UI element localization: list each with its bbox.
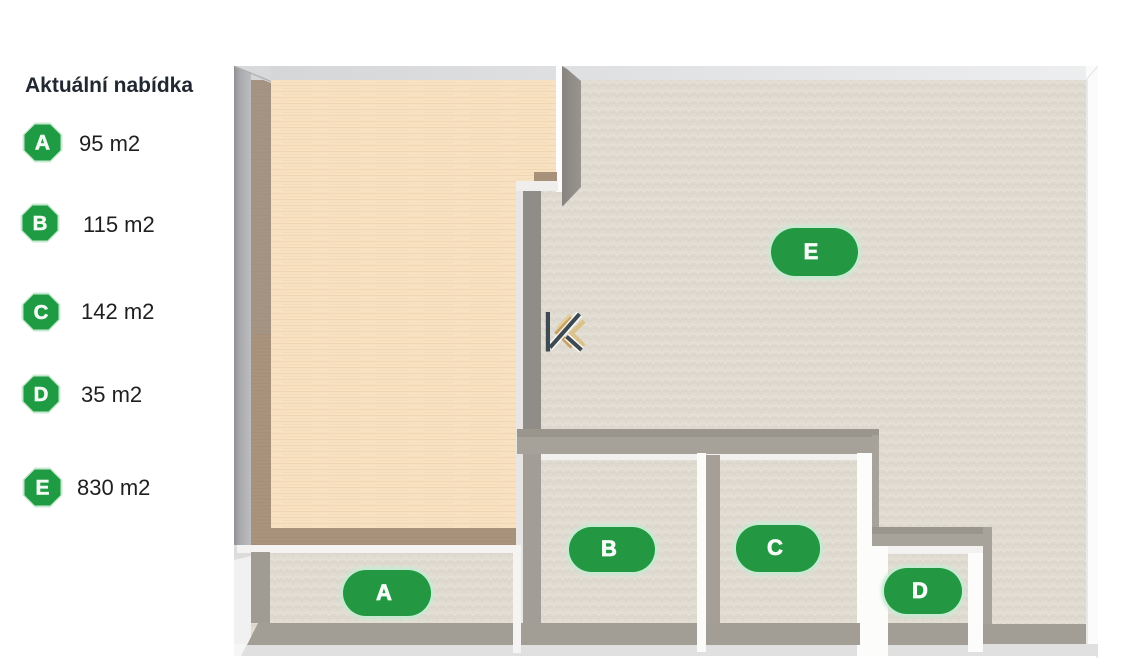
svg-text:E: E	[804, 239, 819, 264]
svg-text:A: A	[376, 580, 392, 605]
svg-text:D: D	[912, 578, 928, 603]
svg-text:C: C	[767, 535, 783, 560]
svg-text:B: B	[601, 536, 617, 561]
